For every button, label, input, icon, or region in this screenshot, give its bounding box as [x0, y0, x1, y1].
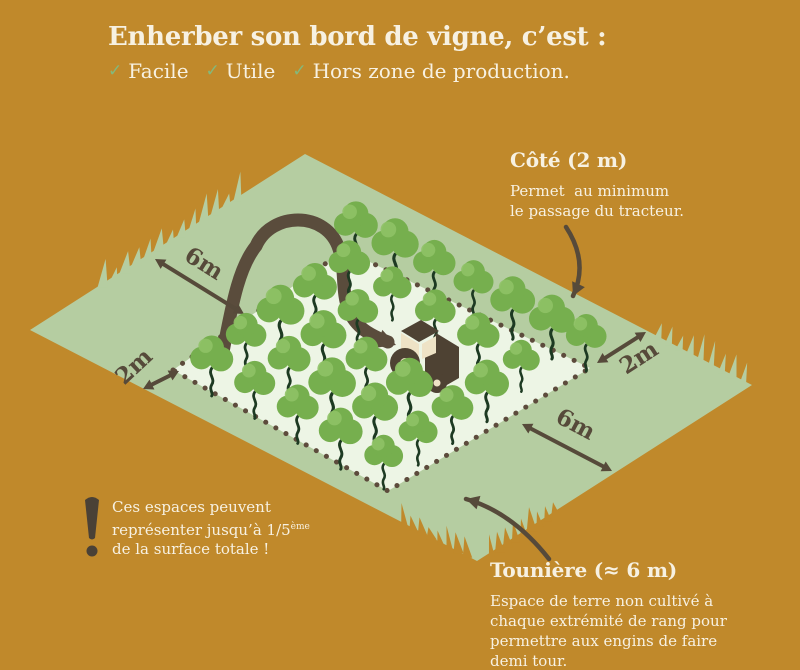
grass-blade — [166, 230, 174, 245]
vine-canopy-highlight — [317, 361, 333, 377]
vine-canopy-highlight — [510, 342, 522, 354]
vine-canopy-highlight — [336, 243, 350, 257]
vine-canopy-highlight — [473, 363, 488, 378]
benefit-item: ✓ Hors zone de production. — [292, 59, 570, 83]
vine-canopy-highlight — [538, 298, 553, 313]
vine-canopy-highlight — [242, 364, 256, 378]
vine-canopy-highlight — [440, 388, 454, 402]
vine-canopy-highlight — [234, 316, 248, 330]
vine-canopy-highlight — [309, 313, 324, 328]
vine-canopy-highlight — [395, 361, 411, 377]
warning-line: Ces espaces peuvent — [112, 498, 310, 518]
benefit-item: ✓ Utile — [206, 59, 276, 83]
benefit-label: Facile — [128, 59, 188, 83]
vine-canopy-highlight — [361, 386, 376, 401]
grass-blade — [143, 239, 151, 259]
touniere-annotation: Tounière (≈ 6 m) Espace de terre non cul… — [490, 558, 727, 670]
benefit-label: Hors zone de production. — [313, 59, 570, 83]
vine-canopy-highlight — [465, 316, 479, 330]
grass-blade — [131, 247, 141, 266]
grass-blade — [222, 194, 231, 209]
grass-blade — [211, 189, 220, 216]
warning-line: de la surface totale ! — [112, 540, 310, 560]
vine-canopy-highlight — [276, 339, 290, 353]
cote-line: Permet au minimum — [510, 181, 684, 201]
grass-blade — [153, 228, 164, 251]
cote-annotation: Côté (2 m) Permet au minimum le passage … — [510, 148, 684, 221]
check-icon: ✓ — [206, 63, 220, 80]
vine-canopy-highlight — [574, 317, 588, 331]
touniere-line: demi tour. — [490, 651, 727, 670]
benefit-label: Utile — [226, 59, 276, 83]
touniere-line: chaque extrémité de rang pour — [490, 611, 727, 631]
grass-blade — [98, 259, 108, 288]
vine-canopy-highlight — [421, 243, 435, 257]
vine-canopy-highlight — [372, 438, 385, 451]
cote-body: Permet au minimum le passage du tracteur… — [510, 181, 684, 221]
vine-canopy-highlight — [301, 266, 316, 281]
check-icon: ✓ — [108, 63, 122, 80]
touniere-line: Espace de terre non cultivé à — [490, 591, 727, 611]
vine-canopy-highlight — [285, 388, 299, 402]
vine-canopy-highlight — [345, 292, 358, 305]
grass-blade — [233, 172, 241, 202]
touniere-heading: Tounière (≈ 6 m) — [490, 558, 727, 582]
vine-canopy-highlight — [327, 411, 342, 426]
touniere-line: permettre aux engins de faire — [490, 631, 727, 651]
infographic-page: { "colors": { "background": "#c0892b", "… — [0, 0, 800, 670]
tractor-wheel-hub — [434, 380, 441, 387]
exclamation-icon — [85, 497, 99, 557]
grass-blade — [177, 219, 186, 237]
vine-canopy-highlight — [423, 292, 437, 306]
grass-blade — [728, 354, 737, 378]
touniere-body: Espace de terre non cultivé à chaque ext… — [490, 591, 727, 670]
superscript: ème — [291, 522, 310, 532]
cote-arrow — [566, 227, 585, 296]
cote-heading: Côté (2 m) — [510, 148, 684, 172]
grass-blade — [110, 267, 117, 280]
vine-canopy-highlight — [198, 339, 212, 353]
vine-canopy-highlight — [406, 413, 419, 426]
vine-canopy-highlight — [354, 340, 368, 354]
grass-blade — [739, 363, 747, 385]
vine-canopy-highlight — [380, 269, 393, 282]
vine-canopy-highlight — [461, 263, 474, 276]
grass-blade — [120, 251, 131, 273]
page-title: Enherber son bord de vigne, c’est : — [108, 22, 606, 52]
grass-blade — [697, 334, 705, 362]
benefit-item: ✓ Facile — [108, 59, 189, 83]
vine-canopy-highlight — [499, 279, 514, 294]
exclamation-dot — [87, 546, 98, 557]
grass-blade — [708, 341, 716, 368]
check-icon: ✓ — [292, 63, 306, 80]
grass-blade — [189, 208, 197, 230]
vine-canopy-highlight — [266, 288, 282, 304]
cote-line: le passage du tracteur. — [510, 201, 684, 221]
vine-canopy-highlight — [380, 222, 396, 238]
exclamation-bar — [85, 497, 99, 540]
benefits-list: ✓ Facile ✓ Utile ✓ Hors zone de producti… — [108, 59, 570, 83]
vine-canopy-highlight — [342, 204, 357, 219]
grass-blade — [199, 194, 209, 223]
warning-annotation: Ces espaces peuvent représenter jusqu’à … — [112, 498, 310, 560]
warning-line: représenter jusqu’à 1/5ème — [112, 518, 310, 541]
